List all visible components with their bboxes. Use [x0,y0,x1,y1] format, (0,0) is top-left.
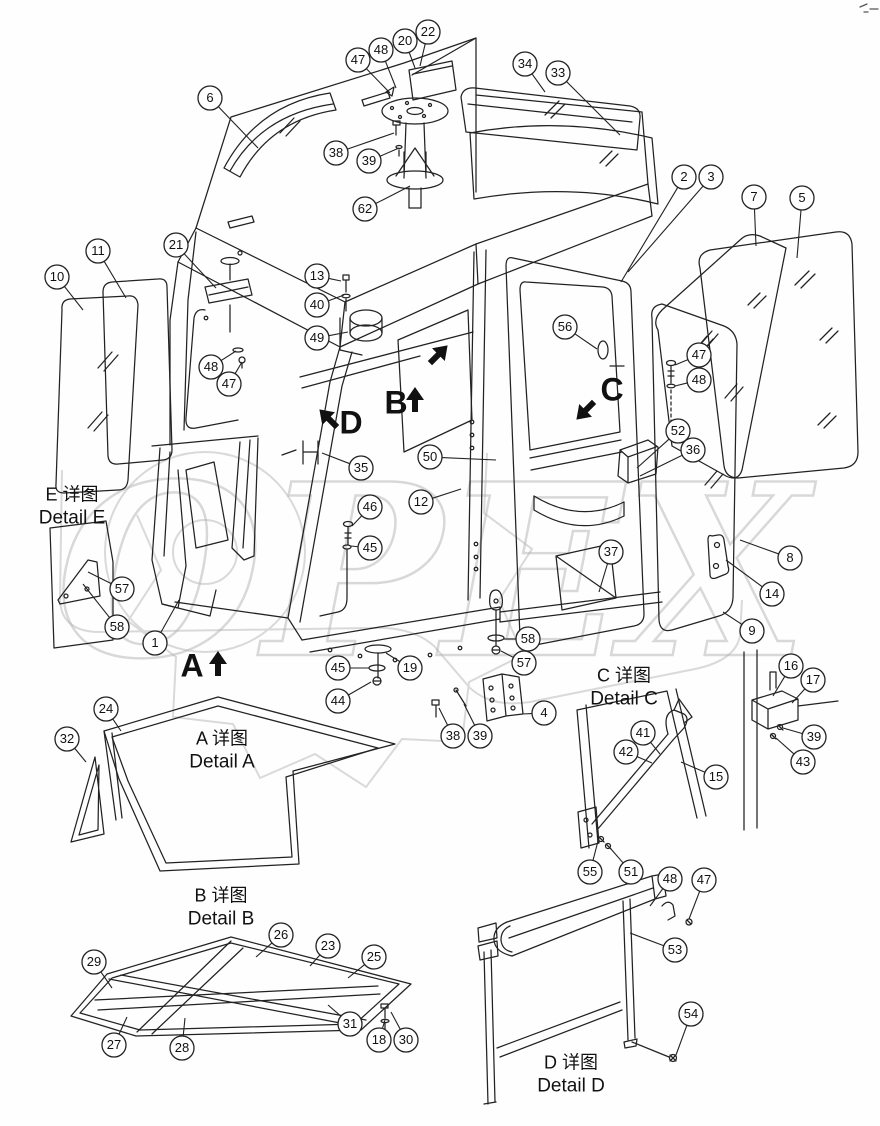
callout-number: 35 [354,460,368,475]
detail-label-en: Detail A [189,750,254,773]
callout-number: 51 [624,864,638,879]
callout-leader-line [532,74,545,92]
callout-leader-line [221,351,236,361]
callout-number: 31 [343,1016,357,1031]
callout-number: 1 [151,635,158,650]
callout-number: 34 [518,56,532,71]
callout-39: 39 [783,725,826,749]
parts-diagram-page: OPEX [0,0,880,1126]
callout-number: 23 [321,938,335,953]
callout-number: 22 [421,24,435,39]
callout-5: 5 [790,186,814,258]
callout-53: 53 [630,933,687,962]
callout-leader-line [783,728,802,734]
detail-label-zh: B 详图 [188,885,255,907]
callout-leader-line [376,186,410,204]
callout-number: 46 [363,499,377,514]
callout-leader-line [351,546,358,547]
callout-number: 38 [329,145,343,160]
callout-number: 27 [107,1037,121,1052]
callout-47: 47 [675,343,711,367]
callout-leader-line [689,891,700,919]
callout-10: 10 [45,265,83,310]
callout-number: 41 [636,725,650,740]
view-arrow-icon [406,387,424,412]
callout-34: 34 [513,52,545,92]
callout-6: 6 [198,86,258,148]
callout-number: 4 [540,705,547,720]
callout-number: 44 [331,693,345,708]
view-arrow-icon [570,396,600,426]
callout-leader-line [385,61,396,88]
callout-number: 7 [750,189,757,204]
callout-number: 20 [398,33,412,48]
callout-number: 28 [175,1040,189,1055]
callout-15: 15 [681,762,728,789]
callout-number: 33 [551,65,565,80]
callout-number: 39 [362,153,376,168]
wiper-assembly [340,275,382,355]
callout-number: 9 [748,623,755,638]
callout-number: 14 [765,586,779,601]
callout-leader-line [183,1018,185,1036]
view-marker-C: C [570,371,624,426]
callout-number: 52 [671,423,685,438]
callout-48: 48 [650,867,682,906]
callout-leader-line [380,148,399,156]
callout-number: 12 [414,494,428,509]
roof-mast [382,98,448,208]
callout-number: 36 [686,442,700,457]
detail-label-zh: D 详图 [537,1052,605,1074]
callout-number: 32 [60,731,74,746]
callout-leader-line [754,209,756,246]
callout-number: 45 [363,540,377,555]
callout-leader-line [391,1012,400,1029]
callout-number: 57 [517,655,531,670]
watermark-text: OPEX [56,433,817,712]
callout-32: 32 [55,727,86,762]
callout-number: 47 [351,52,365,67]
callout-number: 37 [604,544,618,559]
watermark-logo: OPEX [56,433,817,712]
callout-number: 2 [680,169,687,184]
view-letter: A [180,647,203,683]
callout-number: 48 [204,359,218,374]
callout-38: 38 [439,708,465,748]
detail-label-e: E 详图Detail E [39,484,106,529]
callout-number: 10 [50,269,64,284]
callout-number: 42 [619,744,633,759]
callout-number: 47 [222,376,236,391]
callout-leader-line [75,748,86,762]
callout-56: 56 [553,315,597,349]
callout-number: 38 [446,728,460,743]
callout-number: 47 [692,347,706,362]
callout-54: 54 [676,1002,703,1055]
callout-29: 29 [82,950,112,988]
callout-leader-line [630,933,664,946]
callout-number: 56 [558,319,572,334]
callout-number: 55 [583,864,597,879]
callout-number: 19 [403,660,417,675]
view-letter: C [600,371,623,407]
callout-leader-line [366,69,390,93]
callout-number: 48 [663,871,677,886]
roof-glass-panels [461,88,658,204]
callout-leader-line [104,261,126,298]
callout-39: 39 [357,148,399,173]
callout-leader-line [797,210,801,258]
callout-62: 62 [353,186,410,221]
detail-label-b: B 详图Detail B [188,885,255,930]
callout-leader-line [329,332,348,336]
callout-number: 25 [367,949,381,964]
callout-leader-line [329,278,341,281]
corner-marks-icon [860,4,878,12]
callout-number: 17 [806,672,820,687]
callout-number: 57 [115,581,129,596]
callout-leader-line [113,719,121,731]
callout-number: 18 [372,1032,386,1047]
view-marker-B: B [384,384,424,420]
callout-leader-line [611,849,623,863]
callout-number: 40 [310,297,324,312]
callout-number: 11 [91,243,105,258]
callout-48: 48 [369,38,396,88]
callout-number: 62 [358,201,372,216]
callout-number: 49 [310,330,324,345]
callout-11: 11 [86,239,126,298]
callout-28: 28 [170,1018,194,1060]
detail-label-zh: A 详图 [189,728,254,750]
detail-label-en: Detail C [590,687,658,710]
callout-number: 58 [521,631,535,646]
callout-number: 58 [110,619,124,634]
callout-22: 22 [416,20,440,66]
callout-number: 39 [473,728,487,743]
detail-label-d: D 详图Detail D [537,1052,605,1097]
detail-label-a: A 详图Detail A [189,728,254,773]
callout-number: 3 [707,169,714,184]
callout-leader-line [675,360,688,365]
callout-number: 24 [99,701,113,716]
callout-number: 30 [399,1032,413,1047]
callout-number: 47 [697,872,711,887]
callout-leader-line [776,738,794,754]
callout-leader-line [347,133,394,149]
callout-leader-line [575,334,597,349]
callout-number: 48 [692,372,706,387]
callout-number: 39 [807,729,821,744]
detail-label-en: Detail B [188,907,255,930]
callout-number: 50 [423,449,437,464]
detail-label-zh: E 详图 [39,484,106,506]
callout-number: 54 [684,1006,698,1021]
detail-label-c: C 详图Detail C [590,665,658,710]
callout-number: 29 [87,954,101,969]
callout-leader-line [675,383,687,386]
callout-30: 30 [391,1012,418,1052]
callout-number: 45 [331,660,345,675]
callout-leader-line [218,107,258,148]
callout-51: 51 [611,849,643,884]
callout-number: 53 [668,942,682,957]
callout-number: 6 [206,90,213,105]
callout-18: 18 [367,1020,391,1052]
callout-leader-line [420,44,425,66]
callout-number: 43 [796,754,810,769]
detail-label-zh: C 详图 [590,665,658,687]
callout-number: 26 [274,927,288,942]
roof-window-left [224,93,336,177]
callout-number: 21 [169,237,183,252]
view-letter: D [339,404,362,440]
callout-number: 13 [310,268,324,283]
callout-47: 47 [689,868,716,919]
callout-leader-line [676,1025,687,1055]
callout-leader-line [184,254,216,288]
callout-13: 13 [305,264,341,288]
callout-number: 5 [798,190,805,205]
callout-number: 16 [784,658,798,673]
callout-number: 8 [786,550,793,565]
callout-40: 40 [305,293,344,317]
detail-label-en: Detail E [39,506,106,529]
diagram-canvas: OPEX [0,0,880,1126]
callout-number: 48 [374,42,388,57]
callout-leader-line [235,362,242,374]
callout-48: 48 [675,368,711,392]
detail-label-en: Detail D [537,1074,605,1097]
view-letter: B [384,384,407,420]
callout-number: 15 [709,769,723,784]
callout-leader-line [628,186,703,272]
